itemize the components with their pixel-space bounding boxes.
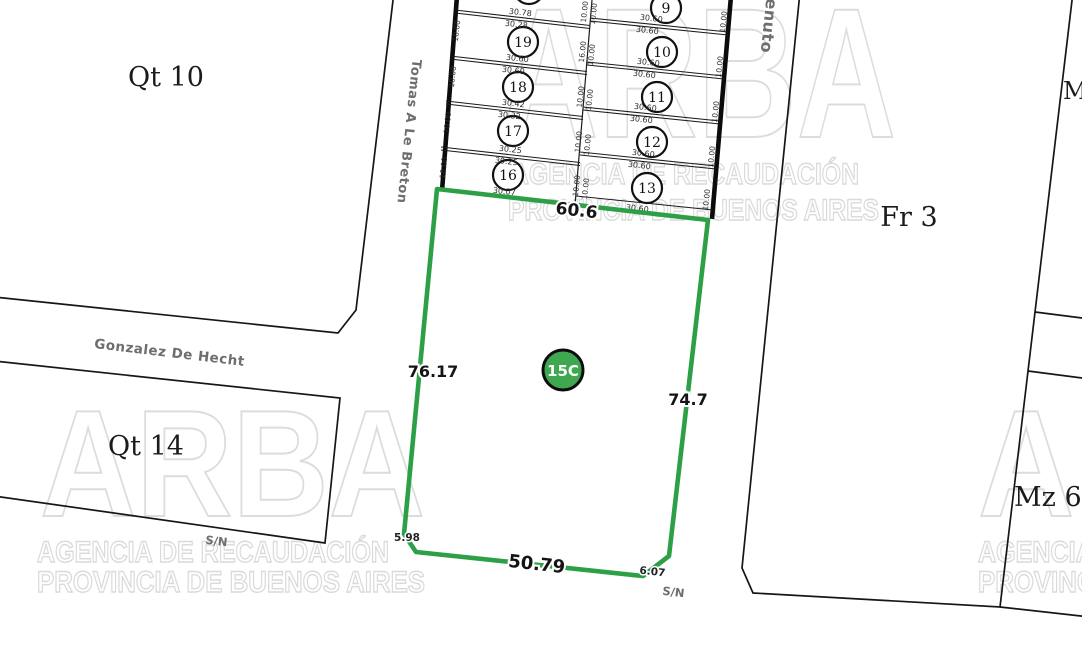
block-label-qt14: Qt 14: [108, 431, 184, 462]
block-mz69-bottom-edge: [1000, 607, 1082, 617]
parcel-side-bottom: 50.79: [507, 551, 566, 578]
street-label-sn-left: S/N: [205, 533, 229, 550]
block-label-fr3: Fr 3: [880, 202, 937, 233]
watermark-agencia-top: AGENCIA DE RECAUDACIÓN: [511, 157, 859, 191]
parcel-number: 13: [638, 181, 656, 197]
block-mz69-divider: [1028, 371, 1082, 379]
parcel-corner-bl: 5.98: [394, 532, 420, 544]
watermark-arba-right-clipped: ARBA: [978, 379, 1082, 549]
block-label-m-clipped: M: [1063, 77, 1082, 105]
frontage-label: 10.00: [451, 19, 462, 42]
parcel-number: 19: [514, 35, 532, 51]
parcel-side-right: 74.7: [668, 390, 707, 409]
parcel-15c-label: 15C: [547, 362, 579, 380]
block-m-divider: [1035, 312, 1082, 319]
parcel-number: 17: [504, 124, 522, 140]
watermark-provincia-bottom-left: PROVINCIA DE BUENOS AIRES: [37, 566, 425, 599]
watermark-arba-left: ARBA: [40, 379, 425, 549]
parcel-number: 16: [499, 168, 517, 184]
parcel-number: 18: [509, 80, 527, 96]
frontage-label: 10.00: [447, 65, 458, 88]
frontage-label: 10.00: [442, 111, 453, 134]
block-label-mz69: Mz 69: [1014, 482, 1082, 513]
highlighted-parcel-15c: 60.6 76.17 74.7 50.79 5.98 6.07 S/N 15C: [394, 189, 708, 600]
block-qt10-outline: [0, 0, 394, 333]
street-label-tomas-a-le-breton: Tomas A Le Breton: [393, 59, 423, 205]
street-label-sn-bottom: S/N: [662, 584, 686, 601]
watermark-arba-top: ARBA: [499, 0, 896, 177]
watermark-agencia-bottom-right-clipped: AGENCIA DE RECAUDACIÓN: [978, 535, 1082, 569]
parcel-side-left: 76.17: [408, 362, 459, 381]
watermark-provincia-bottom-right-clipped: PROVINCIA DE BUENOS AIRES: [978, 566, 1082, 599]
street-label-gonzalez-de-hecht: Gonzalez De Hecht: [93, 336, 245, 370]
cadastral-map: ARBA AGENCIA DE RECAUDACIÓN PROVINCIA DE…: [0, 0, 1082, 670]
frontage-label: 10.00: [438, 156, 449, 179]
block-label-qt10: Qt 10: [128, 62, 204, 93]
